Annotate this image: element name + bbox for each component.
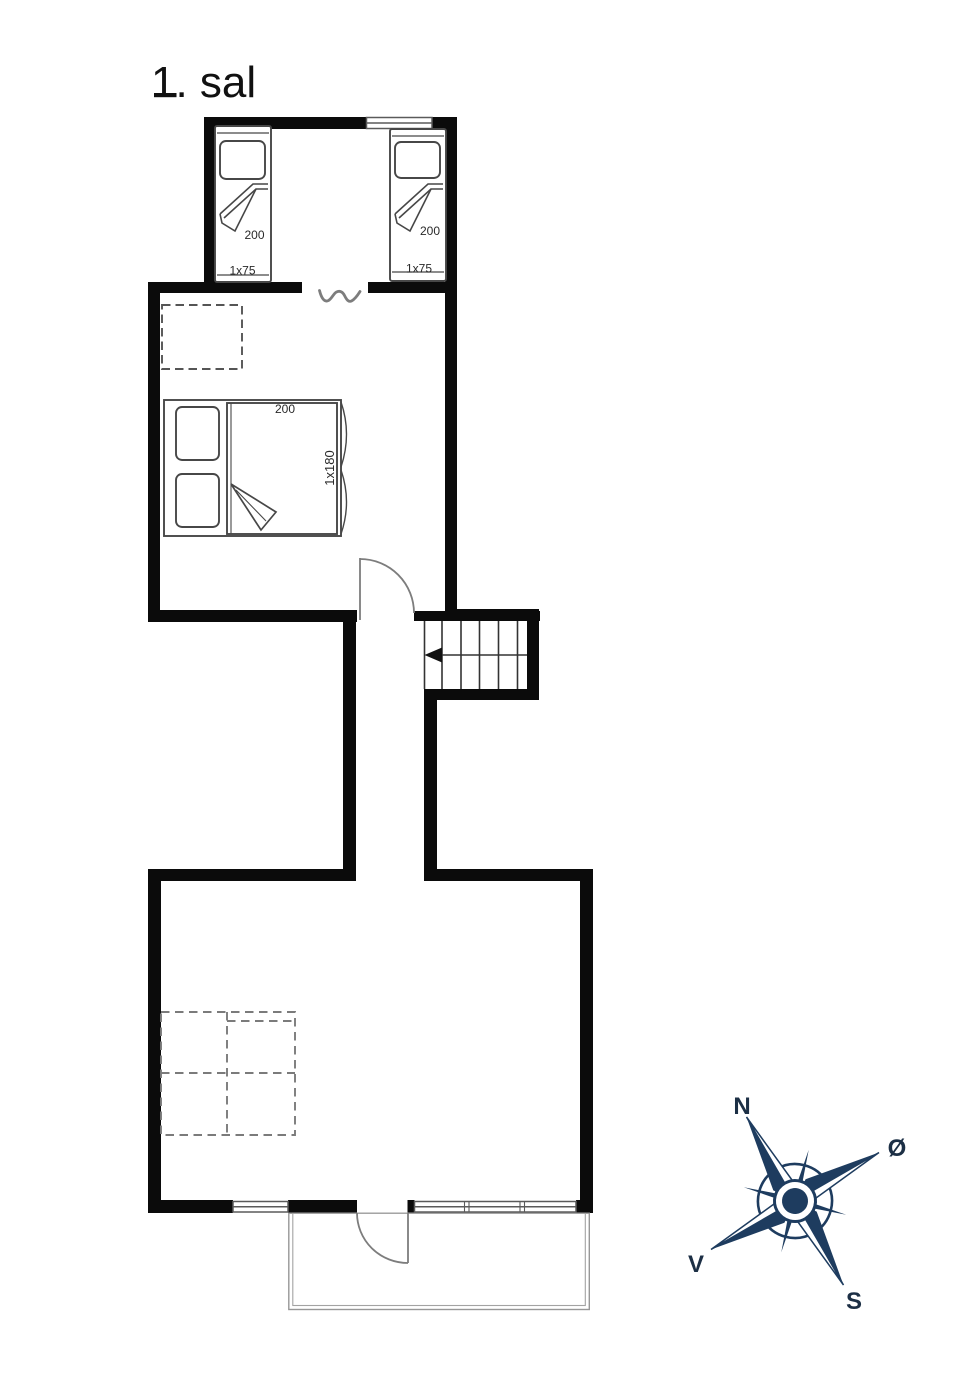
svg-text:1x180: 1x180	[322, 450, 337, 485]
svg-text:1x75: 1x75	[406, 262, 432, 276]
svg-text:200: 200	[244, 228, 264, 242]
svg-text:S: S	[846, 1288, 862, 1315]
svg-text:Ø: Ø	[888, 1135, 907, 1162]
svg-text:1x75: 1x75	[229, 264, 255, 278]
svg-text:200: 200	[275, 402, 295, 416]
svg-text:200: 200	[420, 224, 440, 238]
svg-text:V: V	[688, 1251, 704, 1278]
svg-text:1. sal: 1. sal	[151, 58, 256, 107]
svg-text:N: N	[733, 1093, 750, 1120]
